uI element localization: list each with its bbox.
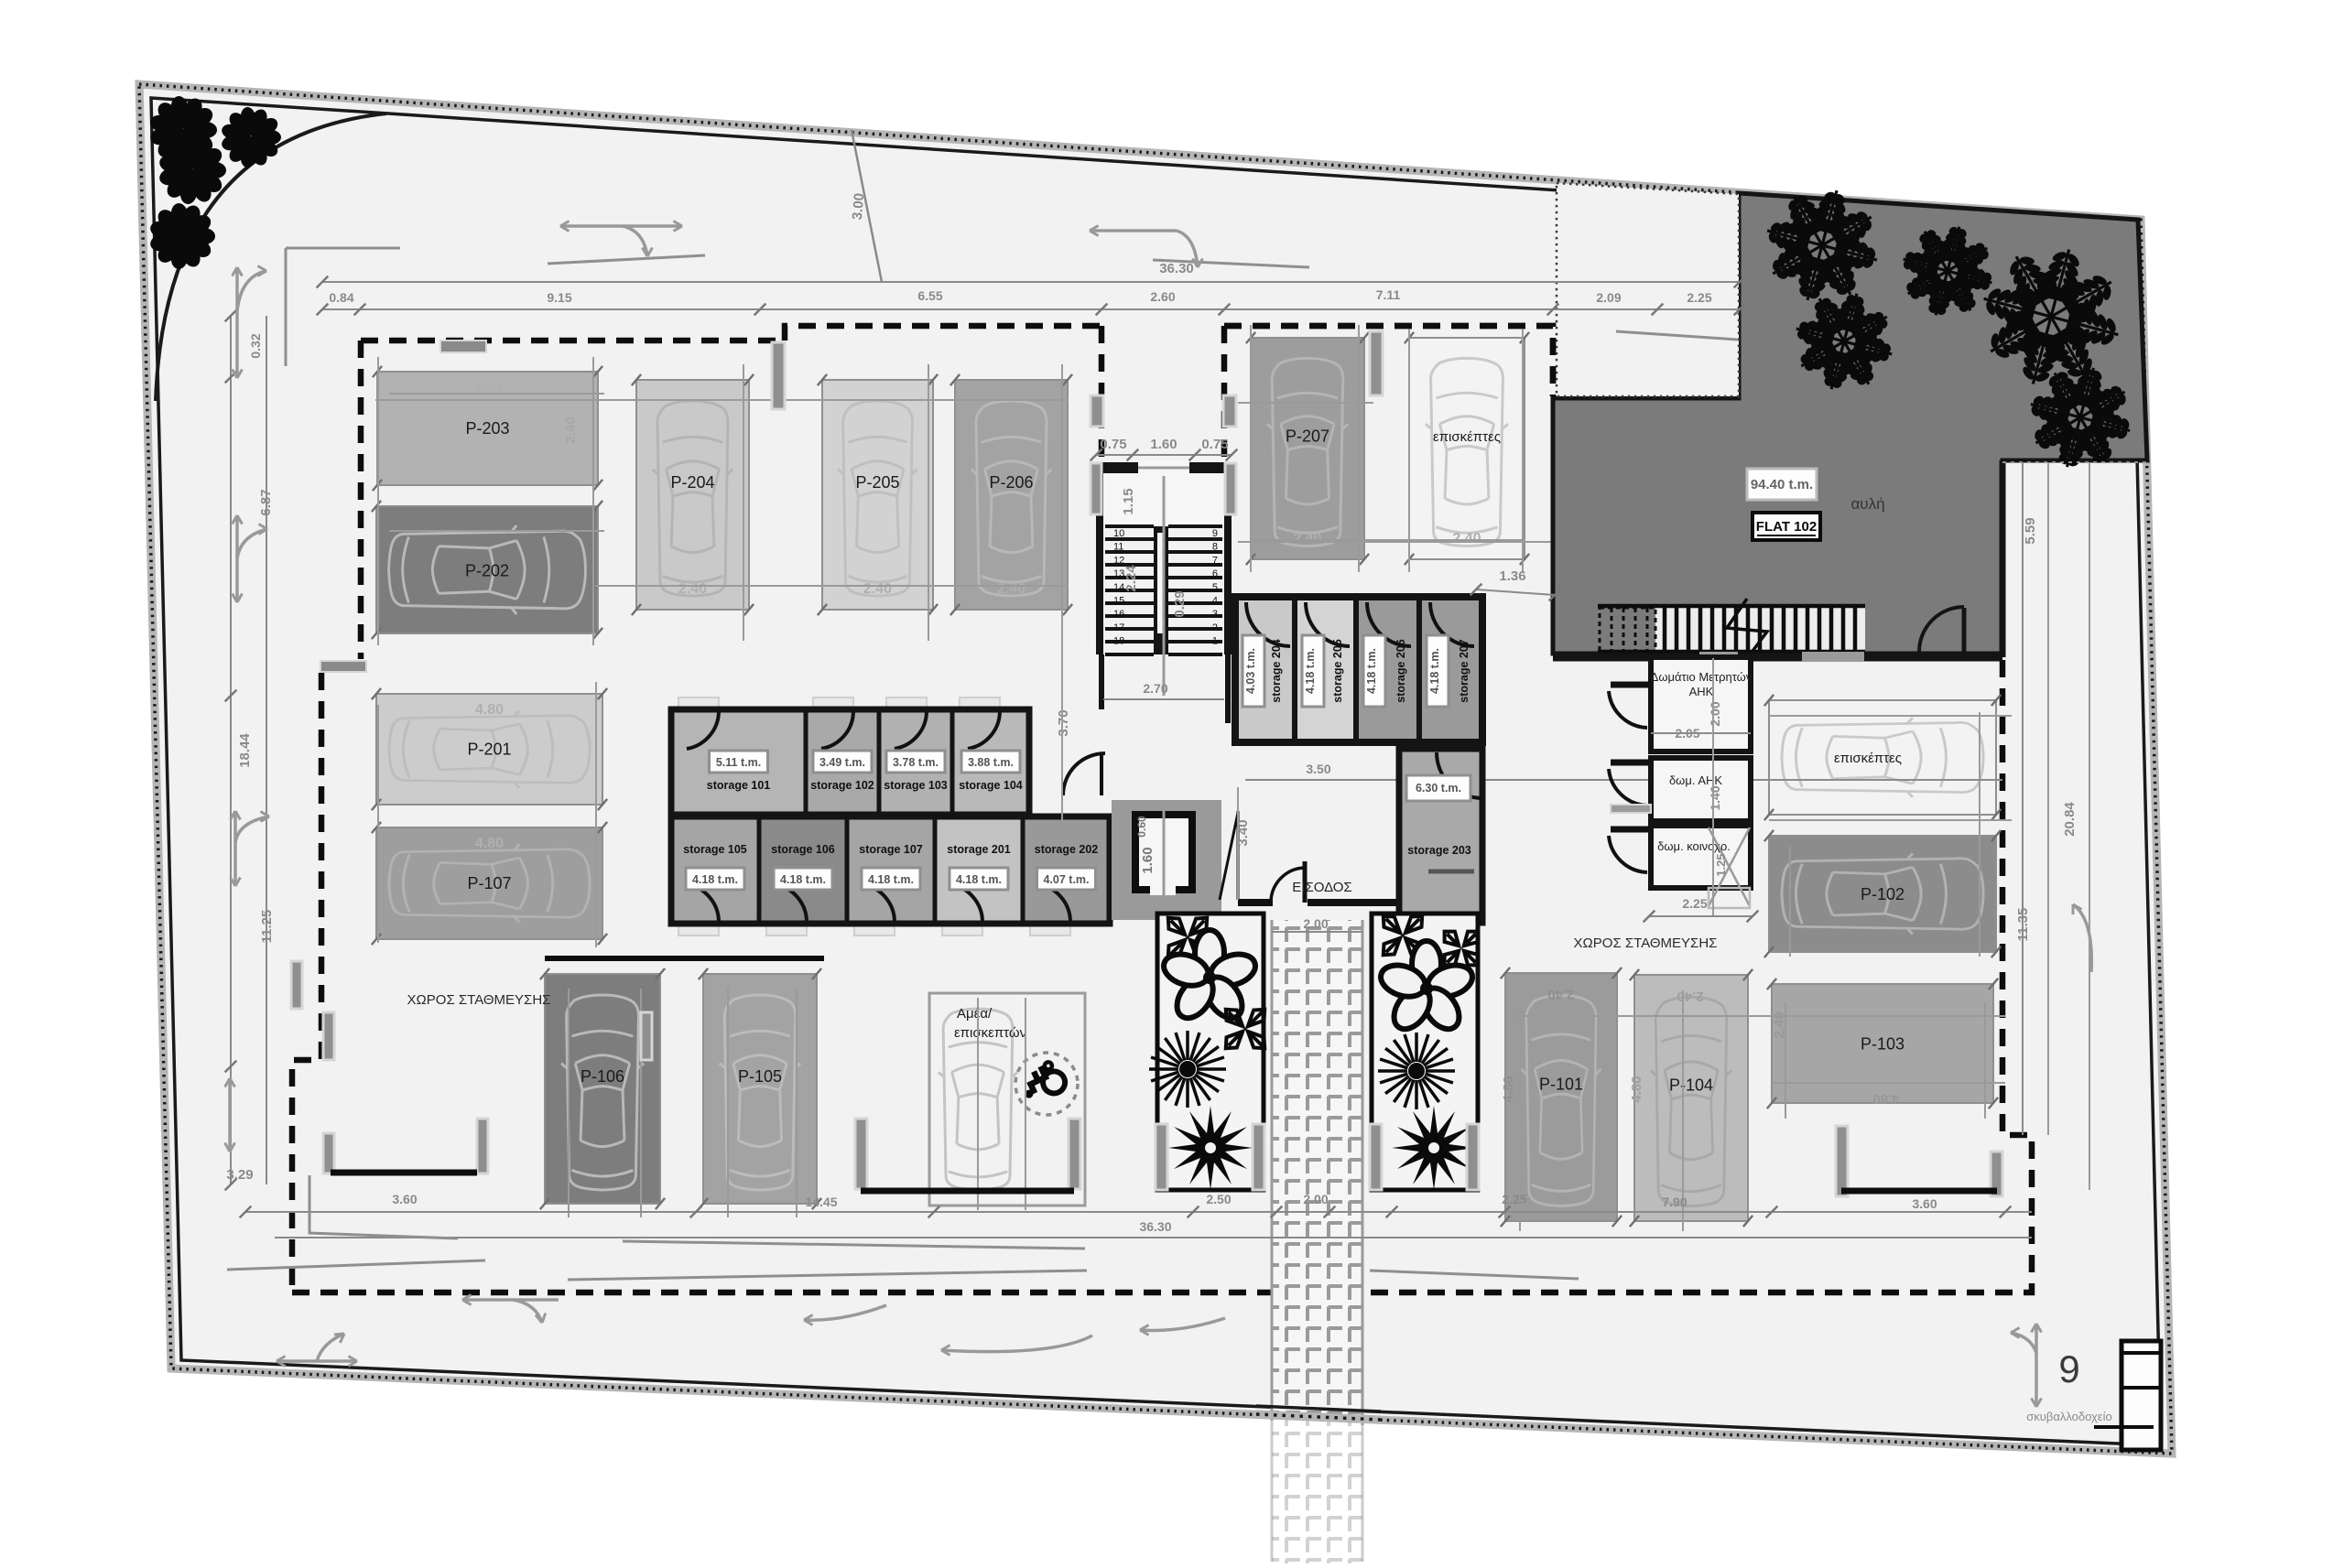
svg-text:P-104: P-104 bbox=[1669, 1076, 1713, 1094]
svg-text:2.60: 2.60 bbox=[1150, 289, 1175, 304]
svg-text:storage 202: storage 202 bbox=[1035, 843, 1099, 856]
svg-text:storage 106: storage 106 bbox=[771, 843, 835, 856]
svg-text:5.11 t.m.: 5.11 t.m. bbox=[716, 756, 761, 769]
svg-text:2.25: 2.25 bbox=[1687, 290, 1711, 305]
svg-text:3.78 t.m.: 3.78 t.m. bbox=[893, 756, 939, 769]
svg-text:P-202: P-202 bbox=[465, 561, 509, 579]
svg-text:storage 104: storage 104 bbox=[959, 779, 1023, 792]
svg-text:storage 103: storage 103 bbox=[884, 779, 948, 792]
svg-text:storage 101: storage 101 bbox=[707, 779, 771, 792]
svg-text:P-206: P-206 bbox=[989, 473, 1033, 492]
svg-text:2.09: 2.09 bbox=[1596, 290, 1621, 305]
svg-text:2.50: 2.50 bbox=[1206, 1192, 1231, 1206]
svg-text:P-103: P-103 bbox=[1861, 1035, 1904, 1054]
svg-text:P-101: P-101 bbox=[1539, 1075, 1583, 1093]
svg-text:18.44: 18.44 bbox=[237, 733, 253, 768]
svg-text:σκυβαλλοδοχείο: σκυβαλλοδοχείο bbox=[2026, 1410, 2112, 1423]
svg-text:10: 10 bbox=[1113, 528, 1124, 539]
svg-text:4.80: 4.80 bbox=[1501, 1076, 1516, 1102]
svg-text:ΧΩΡΟΣ ΣΤΑΘΜΕΥΣΗΣ: ΧΩΡΟΣ ΣΤΑΘΜΕΥΣΗΣ bbox=[1574, 935, 1718, 951]
svg-text:2.00: 2.00 bbox=[1303, 916, 1328, 931]
svg-text:storage 205: storage 205 bbox=[1331, 639, 1344, 703]
svg-text:4: 4 bbox=[1212, 596, 1218, 607]
svg-text:12: 12 bbox=[1113, 555, 1124, 566]
svg-text:Αμέα/: Αμέα/ bbox=[957, 1006, 993, 1022]
svg-text:P-207: P-207 bbox=[1286, 427, 1329, 446]
svg-text:36.30: 36.30 bbox=[1159, 261, 1194, 276]
svg-text:P-102: P-102 bbox=[1861, 885, 1904, 903]
svg-text:2.70: 2.70 bbox=[1143, 681, 1167, 696]
svg-text:4.07 t.m.: 4.07 t.m. bbox=[1043, 873, 1089, 886]
svg-text:storage 203: storage 203 bbox=[1407, 844, 1471, 857]
svg-text:3.50: 3.50 bbox=[1306, 762, 1330, 776]
svg-text:0.84: 0.84 bbox=[329, 290, 353, 305]
svg-text:επισκέπτες: επισκέπτες bbox=[1834, 751, 1902, 766]
svg-text:1.36: 1.36 bbox=[1499, 568, 1525, 584]
svg-text:P-107: P-107 bbox=[467, 874, 511, 892]
svg-text:P-106: P-106 bbox=[581, 1067, 624, 1086]
svg-text:2.00: 2.00 bbox=[1708, 701, 1722, 726]
svg-text:2.40: 2.40 bbox=[1293, 531, 1321, 546]
svg-text:4.80: 4.80 bbox=[475, 836, 504, 851]
svg-text:1: 1 bbox=[1212, 636, 1218, 647]
svg-text:2.40: 2.40 bbox=[1677, 989, 1703, 1004]
svg-text:11: 11 bbox=[1113, 542, 1123, 553]
svg-text:16: 16 bbox=[1113, 609, 1124, 620]
svg-text:P-201: P-201 bbox=[467, 741, 511, 759]
svg-text:storage 206: storage 206 bbox=[1394, 639, 1407, 703]
svg-text:6: 6 bbox=[1212, 568, 1218, 579]
svg-text:7.11: 7.11 bbox=[1376, 287, 1401, 302]
svg-text:3: 3 bbox=[1212, 609, 1218, 620]
svg-text:4.18 t.m.: 4.18 t.m. bbox=[1428, 648, 1441, 694]
svg-text:4.18 t.m.: 4.18 t.m. bbox=[956, 873, 1002, 886]
svg-text:storage 201: storage 201 bbox=[947, 843, 1011, 856]
svg-text:3.88 t.m.: 3.88 t.m. bbox=[968, 756, 1014, 769]
svg-text:3.60: 3.60 bbox=[1912, 1196, 1937, 1211]
svg-text:6.87: 6.87 bbox=[258, 489, 274, 515]
svg-text:4.80: 4.80 bbox=[475, 702, 504, 718]
svg-text:ΕΙΣΟΔΟΣ: ΕΙΣΟΔΟΣ bbox=[1292, 880, 1351, 895]
svg-text:2.40: 2.40 bbox=[678, 581, 707, 597]
svg-text:9: 9 bbox=[2058, 1347, 2079, 1390]
svg-text:ΑΗΚ: ΑΗΚ bbox=[1689, 685, 1714, 698]
svg-text:6.30 t.m.: 6.30 t.m. bbox=[1416, 782, 1461, 795]
svg-text:0.29: 0.29 bbox=[1172, 590, 1188, 617]
svg-text:4.18 t.m.: 4.18 t.m. bbox=[868, 873, 914, 886]
svg-text:5: 5 bbox=[1212, 582, 1218, 593]
svg-text:4.80: 4.80 bbox=[1872, 1091, 1899, 1107]
svg-text:storage 207: storage 207 bbox=[1458, 639, 1470, 703]
svg-text:2: 2 bbox=[1212, 622, 1218, 633]
svg-text:5.59: 5.59 bbox=[2023, 517, 2038, 544]
svg-text:P-105: P-105 bbox=[738, 1067, 782, 1086]
svg-text:14.45: 14.45 bbox=[805, 1195, 837, 1209]
svg-text:δωμ. ΑΗΚ: δωμ. ΑΗΚ bbox=[1669, 773, 1722, 787]
svg-text:επισκέπτες: επισκέπτες bbox=[1433, 429, 1501, 445]
svg-text:3.60: 3.60 bbox=[392, 1192, 417, 1206]
svg-text:2.25: 2.25 bbox=[1682, 896, 1707, 911]
svg-text:9: 9 bbox=[1212, 528, 1218, 539]
svg-text:15: 15 bbox=[1113, 596, 1124, 607]
svg-text:4.18 t.m.: 4.18 t.m. bbox=[780, 873, 826, 886]
svg-text:2.40: 2.40 bbox=[1452, 531, 1481, 546]
svg-text:8: 8 bbox=[1212, 542, 1218, 553]
svg-text:2.24: 2.24 bbox=[1123, 565, 1139, 592]
svg-text:3.70: 3.70 bbox=[1056, 709, 1071, 736]
svg-text:storage 204: storage 204 bbox=[1270, 639, 1283, 703]
svg-text:0.75: 0.75 bbox=[1201, 437, 1228, 452]
svg-text:7.90: 7.90 bbox=[1662, 1195, 1687, 1209]
svg-text:4.18 t.m.: 4.18 t.m. bbox=[692, 873, 738, 886]
svg-text:1.60: 1.60 bbox=[1140, 847, 1156, 873]
svg-text:2.40: 2.40 bbox=[563, 416, 579, 443]
svg-text:3.00: 3.00 bbox=[850, 192, 867, 221]
svg-text:9.15: 9.15 bbox=[547, 290, 571, 305]
svg-text:0.32: 0.32 bbox=[248, 333, 263, 358]
svg-text:2.40: 2.40 bbox=[1547, 987, 1574, 1002]
svg-text:Δωμάτιο Μετρητών: Δωμάτιο Μετρητών bbox=[1651, 670, 1753, 684]
svg-text:4.03 t.m.: 4.03 t.m. bbox=[1244, 648, 1257, 694]
svg-text:αυλή: αυλή bbox=[1850, 495, 1884, 513]
svg-text:2.25: 2.25 bbox=[1502, 1192, 1526, 1206]
svg-text:7: 7 bbox=[1212, 555, 1218, 566]
svg-text:1.60: 1.60 bbox=[1150, 437, 1177, 452]
svg-text:20.84: 20.84 bbox=[2062, 802, 2078, 837]
svg-text:4.18 t.m.: 4.18 t.m. bbox=[1365, 648, 1378, 694]
svg-text:1.40: 1.40 bbox=[1708, 785, 1722, 810]
svg-text:storage 102: storage 102 bbox=[810, 779, 874, 792]
svg-text:2.40: 2.40 bbox=[863, 581, 892, 597]
svg-text:6.55: 6.55 bbox=[917, 288, 942, 303]
svg-text:0.60: 0.60 bbox=[1135, 816, 1148, 838]
svg-text:3.29: 3.29 bbox=[226, 1167, 253, 1183]
svg-text:P-204: P-204 bbox=[670, 473, 714, 492]
svg-text:storage 107: storage 107 bbox=[859, 843, 923, 856]
svg-text:18: 18 bbox=[1113, 636, 1124, 647]
svg-text:ΧΩΡΟΣ ΣΤΑΘΜΕΥΣΗΣ: ΧΩΡΟΣ ΣΤΑΘΜΕΥΣΗΣ bbox=[407, 992, 551, 1008]
svg-text:17: 17 bbox=[1113, 622, 1124, 633]
svg-text:επισκεπτών: επισκεπτών bbox=[954, 1025, 1026, 1041]
svg-text:0.75: 0.75 bbox=[1100, 437, 1126, 452]
svg-text:2.40: 2.40 bbox=[997, 581, 1025, 597]
svg-text:FLAT 102: FLAT 102 bbox=[1756, 519, 1817, 535]
svg-text:4.80: 4.80 bbox=[1629, 1076, 1644, 1102]
svg-text:4.18 t.m.: 4.18 t.m. bbox=[1304, 648, 1317, 694]
svg-text:3.49 t.m.: 3.49 t.m. bbox=[819, 756, 865, 769]
svg-text:36.30: 36.30 bbox=[1139, 1219, 1171, 1234]
svg-text:P-203: P-203 bbox=[465, 419, 509, 438]
svg-text:11.25: 11.25 bbox=[259, 910, 275, 944]
svg-text:1.15: 1.15 bbox=[1121, 488, 1136, 514]
svg-text:storage 105: storage 105 bbox=[683, 843, 747, 856]
svg-text:2.00: 2.00 bbox=[1303, 1192, 1328, 1206]
svg-text:1.25: 1.25 bbox=[1714, 853, 1728, 876]
svg-text:P-205: P-205 bbox=[855, 473, 899, 492]
svg-text:94.40 t.m.: 94.40 t.m. bbox=[1751, 477, 1813, 492]
